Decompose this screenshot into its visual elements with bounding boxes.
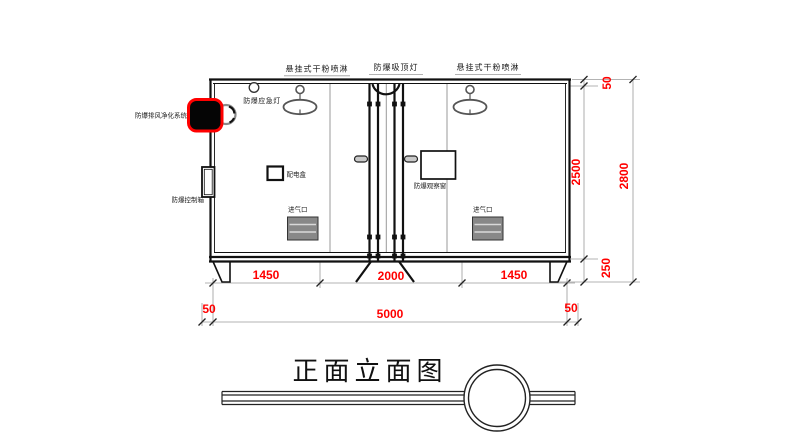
dim-side-top: 50	[600, 76, 614, 90]
dim-margin-right: 50	[564, 301, 578, 315]
hinge-block	[367, 102, 372, 107]
dry-powder-sprinkler-left	[284, 86, 317, 115]
dimension-right-side: 50 2500 250 2800	[559, 76, 640, 286]
hinge-block	[392, 254, 397, 259]
dim-side-total: 2800	[617, 162, 631, 189]
dim-segment-left: 1450	[253, 268, 280, 282]
exhaust-unit-body-highlighted	[189, 100, 223, 132]
emergency-light-icon	[249, 83, 259, 93]
hinge-block	[367, 235, 372, 240]
drawing-title: 正面立面图	[292, 357, 447, 386]
label-ceiling-light: 防爆吸顶灯	[374, 62, 419, 72]
hinge-block	[367, 254, 372, 259]
hinge-block	[401, 102, 406, 107]
observation-window	[421, 151, 456, 179]
hinge-block	[401, 254, 406, 259]
right-leg	[550, 262, 567, 283]
control-box	[202, 167, 215, 197]
label-air-inlet-right: 进气口	[473, 205, 493, 214]
exhaust-purification-unit	[189, 100, 236, 132]
label-air-inlet-left: 进气口	[288, 205, 308, 214]
double-door-assembly	[355, 84, 418, 261]
door-handle-right	[405, 156, 418, 162]
power-box	[268, 167, 284, 181]
center-leg-left	[356, 262, 371, 283]
hinge-block	[376, 254, 381, 259]
air-inlet-vent-left	[288, 217, 319, 240]
title-block: 正面立面图	[222, 357, 575, 431]
vent-grille	[288, 217, 319, 240]
hinge-block	[376, 235, 381, 240]
label-emergency-light: 防爆应急灯	[243, 96, 281, 105]
left-leg	[213, 262, 230, 283]
dimension-row-total: 50 5000 50	[199, 301, 582, 326]
title-circle-outer	[464, 365, 530, 431]
annotation-labels: 悬挂式干粉喷淋 防爆吸顶灯 悬挂式干粉喷淋 防爆应急灯 防爆排风净化系统 防爆控…	[135, 62, 521, 214]
dim-side-height: 2500	[569, 158, 583, 185]
dry-powder-sprinkler-right	[454, 86, 487, 115]
label-control-box: 防爆控制箱	[172, 195, 205, 204]
hinge-block	[401, 235, 406, 240]
vent-grille	[473, 217, 504, 240]
fixtures	[189, 83, 504, 240]
hinge-block	[392, 235, 397, 240]
sprinkler-ball	[466, 86, 474, 94]
hinge-block	[376, 102, 381, 107]
dim-segment-right: 1450	[501, 268, 528, 282]
door-handle-left	[355, 156, 368, 162]
front-elevation-drawing: 1450 2000 1450 50 5000 50 50 2500 250 28…	[0, 0, 800, 445]
hinge-block	[392, 102, 397, 107]
label-power-box: 配电盒	[287, 170, 307, 179]
container-shell	[209, 79, 571, 282]
air-inlet-vent-right	[473, 217, 504, 240]
dim-margin-left: 50	[202, 302, 216, 316]
dim-total-width: 5000	[377, 307, 404, 321]
control-box-outer	[202, 167, 215, 197]
sprinkler-ball	[296, 86, 304, 94]
dim-side-base: 250	[599, 258, 613, 278]
dim-segment-center: 2000	[378, 269, 405, 283]
label-sprinkler-right: 悬挂式干粉喷淋	[457, 62, 520, 72]
label-sprinkler-left: 悬挂式干粉喷淋	[286, 64, 349, 74]
label-exhaust-system: 防爆排风净化系统	[135, 111, 188, 120]
label-observation-window: 防爆观察窗	[414, 181, 447, 190]
